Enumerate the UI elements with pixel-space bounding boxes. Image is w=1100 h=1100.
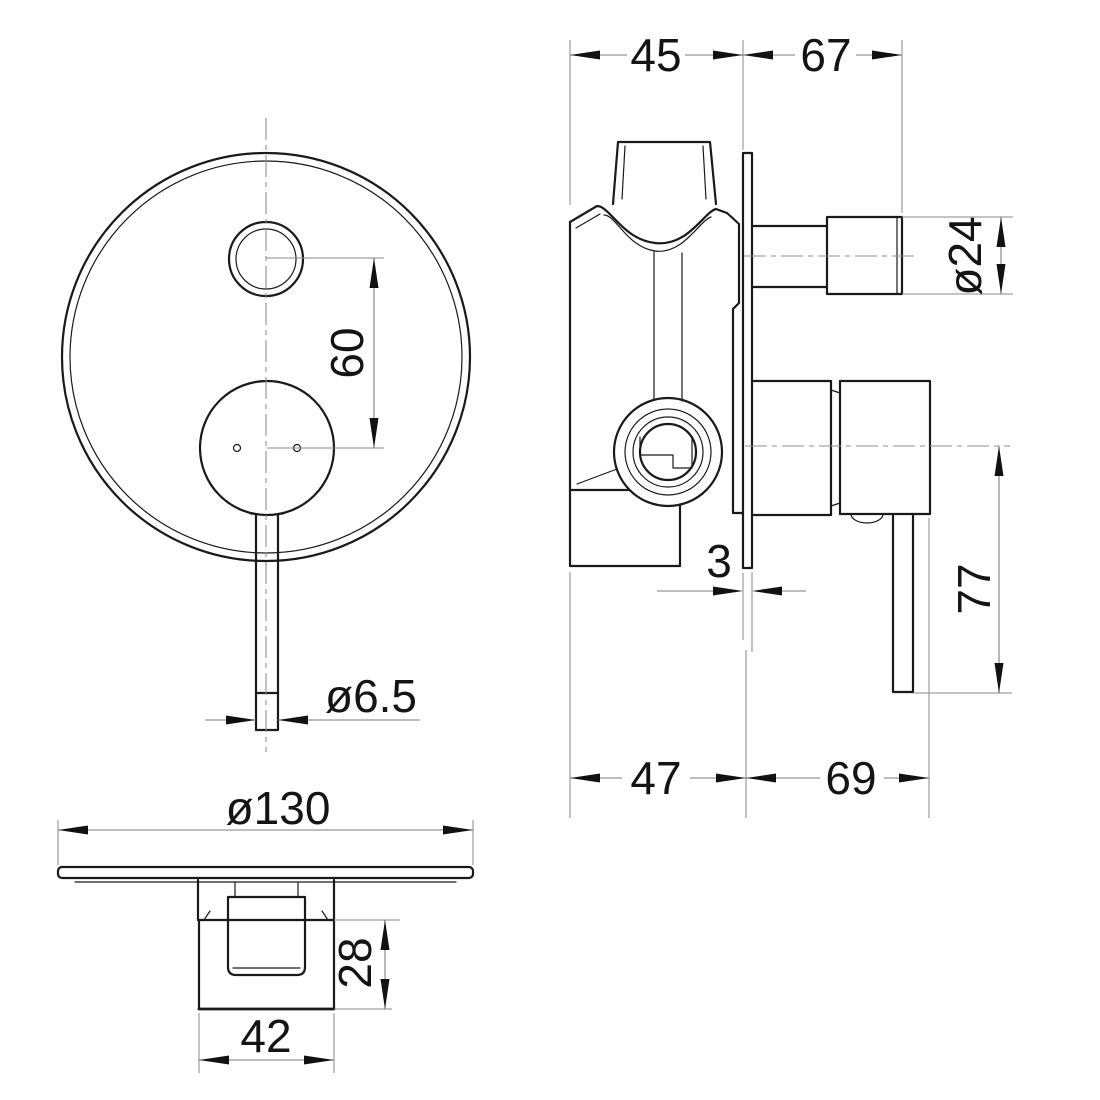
arrowhead-left [199,1056,229,1065]
dimension-45: 45 [570,29,743,205]
dim-label-trim-projection: 69 [825,752,876,804]
arrowhead-right [899,774,929,783]
front-view: 60 ø6.5 [62,118,470,752]
port-ring-mid [625,409,711,495]
dim-label-outlet-diameter: ø24 [939,216,991,295]
dimension-lever-diameter: ø6.5 [205,670,420,725]
knob-neck-lines [235,883,298,897]
lever-fillet-arc [851,514,883,523]
valve-body-outline [570,206,743,513]
handle-sleeve-bottom [198,880,334,920]
cover-plate-bottom-profile [58,867,473,878]
dimension-69: 69 [746,518,929,818]
lever-rod-front [256,515,278,730]
arrowhead-down [997,264,1006,294]
valve-body-foot [570,222,680,566]
arrowhead-right [713,51,743,60]
dimension-hole-spacing-60: 60 [266,258,384,448]
dim-label-plate-thickness: 3 [706,535,732,587]
port-ring-outer [614,398,722,506]
arrowhead-right [713,587,743,596]
dim-label-rough-in-depth: 47 [630,752,681,804]
arrowhead-up [997,217,1006,247]
saddle-inner-curve [604,215,711,251]
drawing-page: 60 ø6.5 [0,0,1100,1100]
dimension-67: 67 [743,29,902,213]
top-inlet-inner-lines [622,146,706,199]
handle-sleeve [752,381,831,515]
arrowhead-right [872,51,902,60]
extension-lines [743,572,752,652]
arrowhead-right [716,774,746,783]
handle-neck-lines [831,390,840,506]
arrowhead-left [278,716,308,725]
cartridge-stem-lines [654,251,682,401]
top-inlet-port [613,142,716,204]
arrowhead-down [995,663,1004,693]
dim-label-body-depth: 45 [630,29,681,81]
dim-label-projection: 67 [800,29,851,81]
dimension-body-height: 28 [329,920,400,1009]
arrowhead-up [995,446,1004,476]
arrowhead-right [443,826,473,835]
dim-label-handle-drop: 77 [948,563,1000,614]
arrowhead-up [381,920,390,950]
body-chamfer-diagonal [577,469,617,484]
cartridge-port-rings [614,398,722,506]
arrowhead-down [381,979,390,1009]
side-view: 45 67 ø24 3 [570,29,1013,818]
dimension-body-width: 42 [199,1010,334,1073]
handle-pin-hole-left [234,445,241,452]
dim-label-lever-diameter: ø6.5 [325,670,417,722]
arrowhead-up [370,258,379,288]
bottom-view: ø130 28 42 [58,782,473,1073]
handle-cylinder [840,381,930,514]
arrowhead-left [570,51,600,60]
arrowhead-left [570,774,600,783]
arrowhead-left [743,51,773,60]
sleeve-chamfer-ticks [204,911,328,920]
handle-knob-bottom [228,897,305,975]
dim-label-outlet-to-cartridge-spacing: 60 [321,327,373,378]
dimension-outlet-diameter: ø24 [902,216,1013,295]
dimension-handle-drop: 77 [913,446,1012,693]
dim-label-plate-diameter: ø130 [226,782,331,834]
shower-mixer-technical-drawing: 60 ø6.5 [0,0,1100,1100]
dimension-47: 47 [570,572,746,818]
dimension-plate-diameter: ø130 [58,782,473,865]
lever-rod-side [893,514,913,692]
dim-label-body-width: 42 [240,1010,291,1062]
arrowhead-left [746,774,776,783]
arrowhead-down [370,418,379,448]
port-bore [640,424,696,480]
port-key-detail [640,437,692,468]
handle-body-sides [199,920,334,1009]
arrowhead-left [752,587,782,596]
arrowhead-left [58,826,88,835]
arrowhead-right [226,716,256,725]
wall-plate-side [743,153,752,568]
arrowhead-right [304,1056,334,1065]
dim-label-body-height: 28 [329,937,381,988]
